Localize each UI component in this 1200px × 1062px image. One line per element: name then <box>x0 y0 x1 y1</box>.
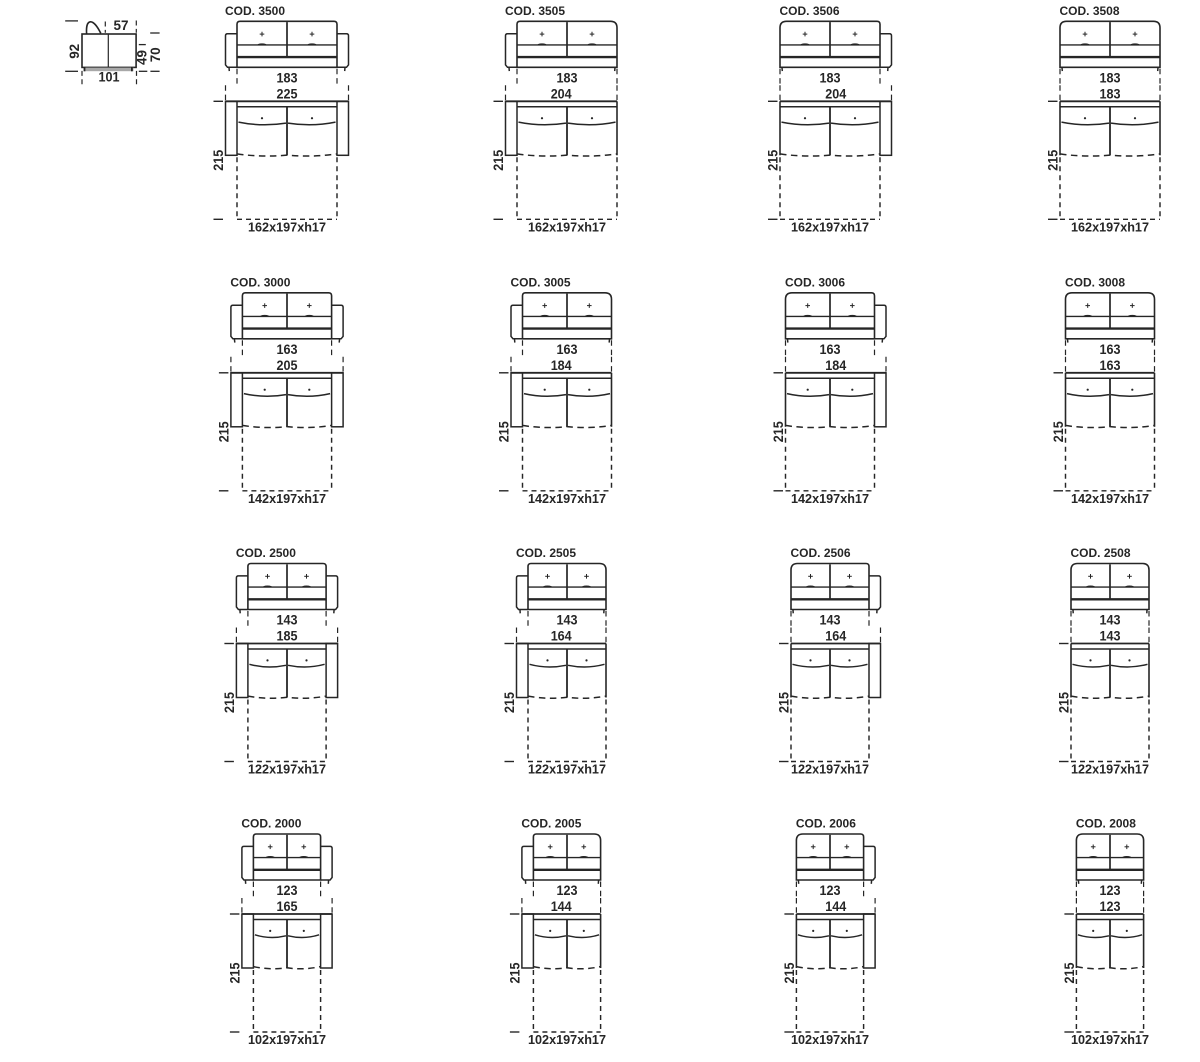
svg-text:162x197xh17: 162x197xh17 <box>791 219 869 234</box>
svg-text:COD. 3008: COD. 3008 <box>1065 275 1125 289</box>
svg-text:215: 215 <box>1051 421 1066 442</box>
svg-text:COD. 2506: COD. 2506 <box>791 546 851 560</box>
svg-text:COD. 2006: COD. 2006 <box>796 817 856 831</box>
svg-text:COD. 2008: COD. 2008 <box>1076 817 1136 831</box>
svg-text:163: 163 <box>1100 358 1121 373</box>
svg-text:COD. 3500: COD. 3500 <box>225 4 285 18</box>
svg-text:123: 123 <box>1100 883 1121 898</box>
svg-text:162x197xh17: 162x197xh17 <box>248 219 326 234</box>
svg-text:215: 215 <box>211 149 226 170</box>
svg-text:102x197xh17: 102x197xh17 <box>1071 1032 1149 1047</box>
svg-text:144: 144 <box>551 899 572 914</box>
svg-text:215: 215 <box>502 692 517 713</box>
svg-text:102x197xh17: 102x197xh17 <box>248 1032 326 1047</box>
svg-text:57: 57 <box>114 18 129 33</box>
svg-text:205: 205 <box>277 358 298 373</box>
svg-text:COD. 2505: COD. 2505 <box>516 546 576 560</box>
svg-text:122x197xh17: 122x197xh17 <box>248 762 326 777</box>
svg-text:215: 215 <box>771 421 786 442</box>
svg-text:163: 163 <box>820 342 841 357</box>
svg-text:144: 144 <box>825 899 846 914</box>
svg-text:215: 215 <box>222 692 237 713</box>
svg-text:184: 184 <box>825 358 846 373</box>
svg-text:COD. 3005: COD. 3005 <box>511 275 571 289</box>
svg-text:102x197xh17: 102x197xh17 <box>791 1032 869 1047</box>
svg-text:215: 215 <box>497 421 512 442</box>
svg-text:215: 215 <box>1062 962 1077 983</box>
svg-text:204: 204 <box>825 86 846 101</box>
svg-text:122x197xh17: 122x197xh17 <box>1071 762 1149 777</box>
svg-text:143: 143 <box>1100 613 1121 628</box>
svg-text:164: 164 <box>551 629 572 644</box>
svg-text:102x197xh17: 102x197xh17 <box>528 1032 606 1047</box>
svg-text:215: 215 <box>491 149 506 170</box>
svg-text:COD. 3506: COD. 3506 <box>780 4 840 18</box>
svg-text:123: 123 <box>820 883 841 898</box>
svg-text:142x197xh17: 142x197xh17 <box>791 491 869 506</box>
svg-text:215: 215 <box>507 962 522 983</box>
svg-text:143: 143 <box>557 613 578 628</box>
svg-text:215: 215 <box>1046 149 1061 170</box>
svg-text:162x197xh17: 162x197xh17 <box>528 219 606 234</box>
svg-text:COD. 3508: COD. 3508 <box>1060 4 1120 18</box>
svg-text:183: 183 <box>1100 86 1121 101</box>
svg-text:163: 163 <box>1100 342 1121 357</box>
svg-text:215: 215 <box>766 149 781 170</box>
svg-text:184: 184 <box>551 358 572 373</box>
svg-text:215: 215 <box>216 421 231 442</box>
svg-text:215: 215 <box>1057 692 1072 713</box>
svg-text:163: 163 <box>557 342 578 357</box>
svg-text:165: 165 <box>277 899 298 914</box>
svg-text:185: 185 <box>277 629 298 644</box>
svg-text:143: 143 <box>277 613 298 628</box>
svg-text:COD. 3505: COD. 3505 <box>505 4 565 18</box>
svg-text:142x197xh17: 142x197xh17 <box>528 491 606 506</box>
svg-text:122x197xh17: 122x197xh17 <box>528 762 606 777</box>
svg-text:COD. 2005: COD. 2005 <box>521 817 581 831</box>
svg-text:COD. 2000: COD. 2000 <box>241 817 301 831</box>
svg-text:COD. 2500: COD. 2500 <box>236 546 296 560</box>
svg-text:101: 101 <box>99 69 120 84</box>
svg-text:142x197xh17: 142x197xh17 <box>1071 491 1149 506</box>
svg-text:122x197xh17: 122x197xh17 <box>791 762 869 777</box>
svg-text:92: 92 <box>67 44 82 59</box>
svg-text:215: 215 <box>782 962 797 983</box>
svg-text:164: 164 <box>825 629 846 644</box>
svg-text:183: 183 <box>820 70 841 85</box>
svg-text:COD. 3000: COD. 3000 <box>230 275 290 289</box>
svg-text:162x197xh17: 162x197xh17 <box>1071 219 1149 234</box>
svg-text:143: 143 <box>820 613 841 628</box>
svg-text:183: 183 <box>1100 70 1121 85</box>
svg-text:142x197xh17: 142x197xh17 <box>248 491 326 506</box>
svg-text:COD. 2508: COD. 2508 <box>1071 546 1131 560</box>
svg-text:183: 183 <box>277 70 298 85</box>
svg-text:70: 70 <box>148 47 163 62</box>
svg-text:123: 123 <box>557 883 578 898</box>
svg-text:COD. 3006: COD. 3006 <box>785 275 845 289</box>
svg-text:123: 123 <box>277 883 298 898</box>
svg-text:215: 215 <box>227 962 242 983</box>
svg-text:225: 225 <box>277 86 298 101</box>
svg-text:163: 163 <box>277 342 298 357</box>
svg-text:123: 123 <box>1100 899 1121 914</box>
svg-text:143: 143 <box>1100 629 1121 644</box>
svg-text:204: 204 <box>551 86 572 101</box>
svg-text:183: 183 <box>557 70 578 85</box>
svg-text:215: 215 <box>777 692 792 713</box>
